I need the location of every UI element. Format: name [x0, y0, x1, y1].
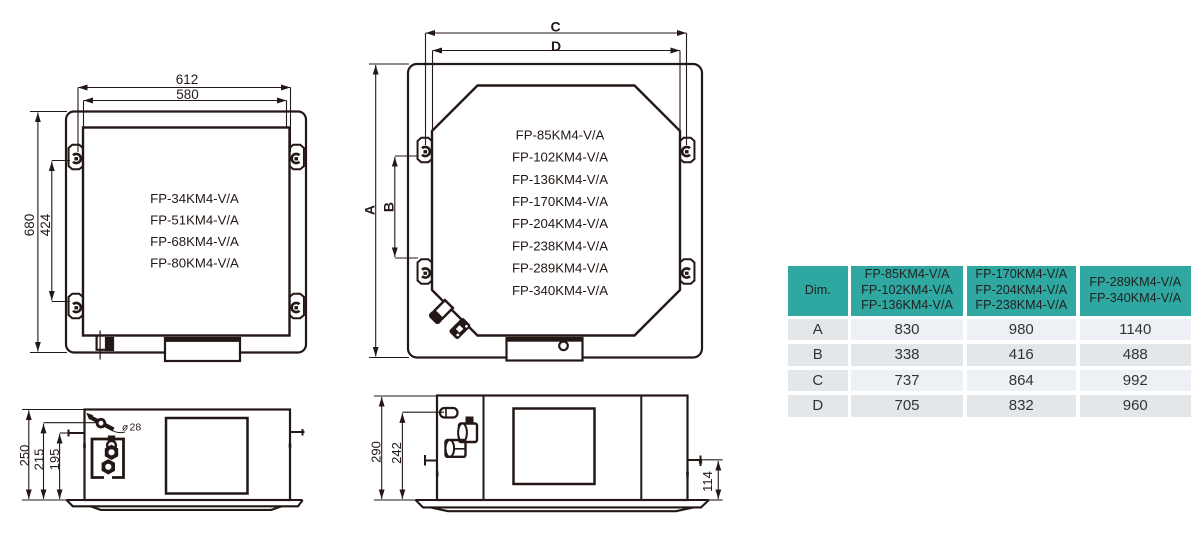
svg-text:FP-51KM4-V/A: FP-51KM4-V/A — [150, 213, 239, 228]
svg-text:FP-85KM4-V/A: FP-85KM4-V/A — [516, 127, 605, 142]
svg-text:FP-289KM4-V/A: FP-289KM4-V/A — [512, 261, 608, 276]
svg-text:680: 680 — [22, 214, 37, 237]
svg-text:FP-340KM4-V/A: FP-340KM4-V/A — [512, 283, 608, 298]
svg-text:A: A — [362, 205, 378, 215]
svg-text:580: 580 — [176, 87, 199, 102]
svg-text:28: 28 — [130, 422, 142, 434]
svg-text:FP-170KM4-V/A: FP-170KM4-V/A — [512, 194, 608, 209]
svg-text:FP-34KM4-V/A: FP-34KM4-V/A — [150, 191, 239, 206]
svg-text:FP-204KM4-V/A: FP-204KM4-V/A — [512, 216, 608, 231]
svg-text:FP-68KM4-V/A: FP-68KM4-V/A — [150, 234, 239, 249]
svg-text:D: D — [551, 38, 561, 54]
svg-text:FP-80KM4-V/A: FP-80KM4-V/A — [150, 256, 239, 271]
svg-text:114: 114 — [700, 471, 715, 492]
svg-text:ø: ø — [122, 423, 128, 434]
svg-text:424: 424 — [38, 213, 53, 236]
svg-text:242: 242 — [389, 442, 404, 464]
svg-text:250: 250 — [17, 445, 32, 467]
svg-text:FP-238KM4-V/A: FP-238KM4-V/A — [512, 238, 608, 253]
svg-text:FP-136KM4-V/A: FP-136KM4-V/A — [512, 172, 608, 187]
svg-text:FP-102KM4-V/A: FP-102KM4-V/A — [512, 150, 608, 165]
svg-text:C: C — [550, 19, 560, 35]
svg-text:612: 612 — [176, 72, 199, 87]
svg-text:B: B — [381, 202, 397, 212]
